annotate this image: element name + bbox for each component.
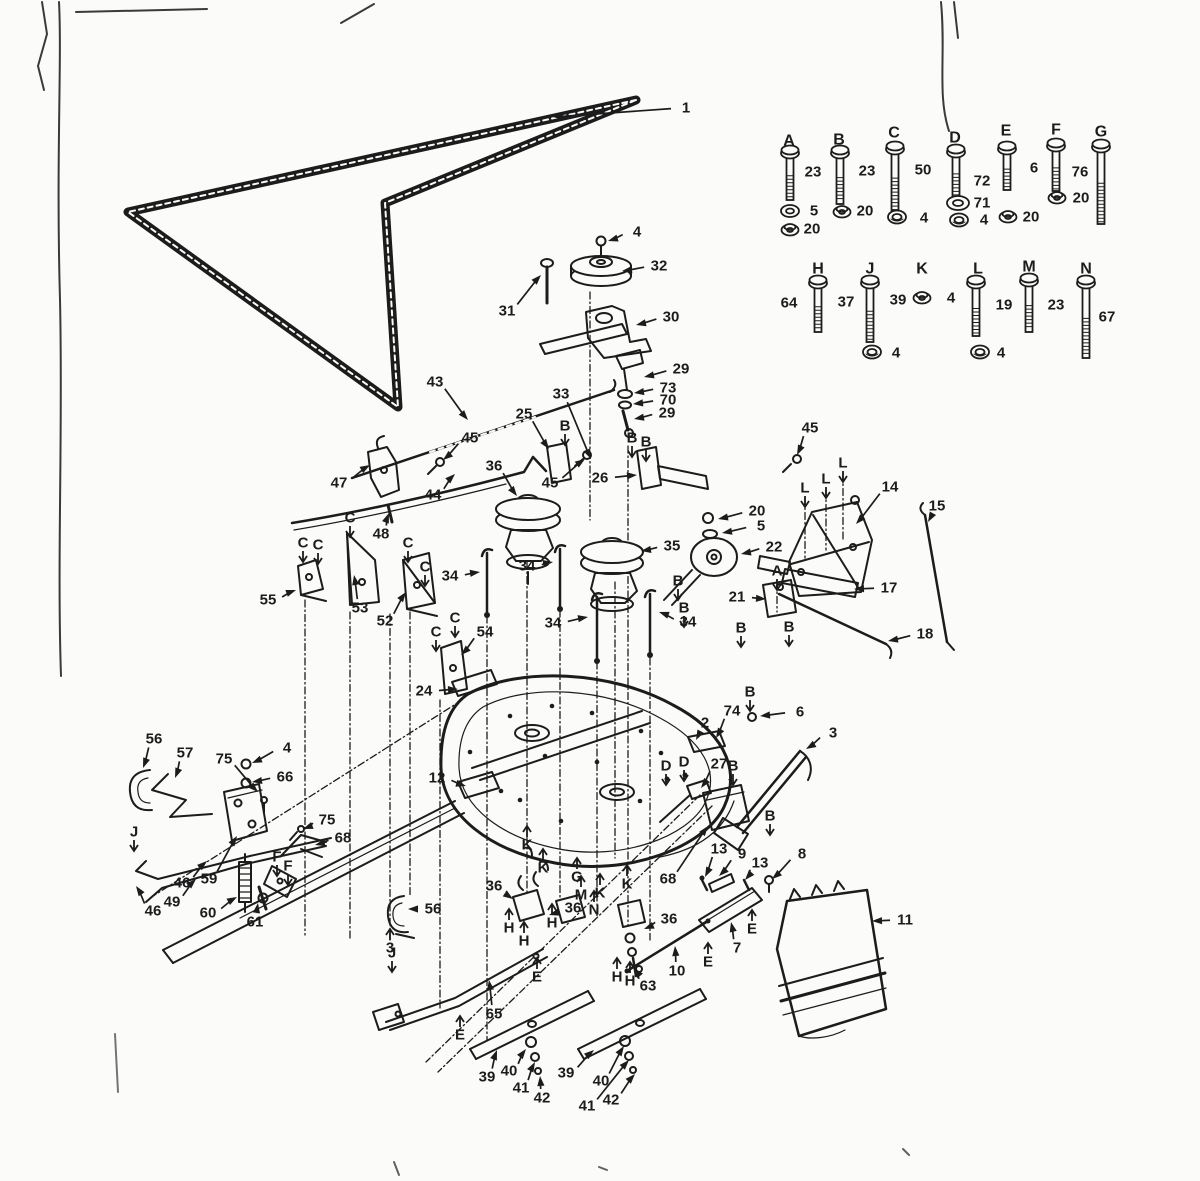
position-arrow-down — [299, 551, 307, 562]
fastener-icon-bolt — [947, 145, 965, 198]
part-number-callout: 63 — [640, 978, 657, 995]
part-number-callout: 41 — [579, 1098, 596, 1115]
leader-arrowhead — [705, 866, 713, 877]
fastener-letter-callout: B — [736, 620, 747, 637]
fastener-letter-callout: F — [283, 858, 292, 875]
legend-letter: N — [1080, 261, 1092, 278]
legend-letter: E — [1001, 123, 1012, 140]
legend-part-number: 5 — [810, 203, 818, 220]
fastener-letter-callout: L — [821, 471, 830, 488]
legend-part-number: 19 — [996, 297, 1013, 314]
fastener-letter-callout: J — [130, 824, 138, 841]
parts-diagram-canvas: 1432313029737029332543453644474826454514… — [0, 0, 1200, 1181]
blades — [470, 989, 706, 1074]
fastener-letter-callout: D — [661, 758, 672, 775]
part-number-callout: 13 — [752, 855, 769, 872]
fastener-icon-bolt — [831, 146, 849, 205]
fastener-letter-callout: A — [772, 563, 783, 580]
fastener-letter-callout: H — [519, 933, 530, 950]
part-number-callout: 36 — [486, 458, 503, 475]
position-arrow-up — [748, 910, 756, 921]
fastener-letter-callout: B — [679, 600, 690, 617]
leader-arrowhead — [470, 570, 480, 577]
part-number-callout: 4 — [283, 740, 292, 757]
position-arrow-up — [505, 909, 513, 920]
fastener-letter-callout: H — [625, 973, 636, 990]
leader-arrowhead — [508, 486, 517, 496]
legend-part-number: 67 — [1099, 309, 1116, 326]
legend-part-number: 39 — [890, 292, 907, 309]
part-number-callout: 68 — [335, 830, 352, 847]
part-number-callout: 42 — [603, 1092, 620, 1109]
leader-arrowhead — [487, 980, 494, 990]
legend-letter: D — [949, 130, 961, 147]
fastener-letter-callout: F — [272, 849, 281, 866]
fastener-letter-callout: B — [641, 434, 652, 451]
leader-arrowhead — [634, 388, 644, 395]
part-number-callout: 18 — [917, 626, 934, 643]
part-number-callout: 74 — [724, 703, 741, 720]
part-number-callout: 8 — [798, 846, 806, 863]
part-number-callout: 30 — [663, 309, 680, 326]
part-number-callout: 61 — [247, 914, 264, 931]
leader-arrowhead — [252, 756, 263, 763]
legend-part-number: 4 — [997, 345, 1006, 362]
leader-line — [517, 279, 537, 304]
part-number-callout: 9 — [738, 846, 746, 863]
leader-arrowhead — [459, 410, 468, 420]
fastener-letter-callout: K — [538, 860, 549, 877]
fastener-letter-callout: H — [612, 969, 623, 986]
leader-line — [567, 402, 588, 453]
fastener-letter-callout: H — [504, 920, 515, 937]
part-number-callout: 43 — [427, 374, 444, 391]
fastener-letter-callout: E — [747, 921, 757, 938]
position-arrow-down — [130, 840, 138, 851]
part-number-callout: 46 — [145, 903, 162, 920]
leader-arrowhead — [644, 371, 655, 378]
part-number-callout: 68 — [660, 871, 677, 888]
position-arrow-down — [432, 640, 440, 651]
position-arrow-down — [662, 774, 670, 785]
callouts-layer: 1432313029737029332543453644474826454514… — [130, 100, 946, 1115]
position-arrow-down — [642, 450, 650, 461]
leader-arrowhead — [537, 1076, 544, 1086]
part-number-callout: 26 — [592, 470, 609, 487]
part-number-callout: 41 — [513, 1080, 530, 1097]
fastener-icon-locknut — [1049, 192, 1066, 204]
position-arrow-down — [314, 553, 322, 564]
part-number-callout: 3 — [829, 725, 837, 742]
part-number-callout: 5 — [757, 518, 765, 535]
leader-arrowhead — [730, 922, 737, 933]
part-number-callout: 12 — [429, 770, 446, 787]
legend-letter: L — [973, 261, 983, 278]
part-number-callout: 20 — [749, 503, 766, 520]
part-number-callout: 54 — [477, 624, 494, 641]
position-arrow-up — [704, 943, 712, 954]
fastener-letter-callout: E — [703, 954, 713, 971]
fastener-icon-nut — [888, 211, 906, 224]
legend-part-number: 64 — [781, 295, 798, 312]
part-number-callout: 34 — [545, 615, 562, 632]
part-number-callout: 14 — [882, 479, 899, 496]
fastener-letter-callout: E — [532, 969, 542, 986]
part-number-callout: 39 — [558, 1065, 575, 1082]
part-number-callout: 22 — [766, 539, 783, 556]
fastener-icon-flatwasher — [947, 196, 969, 210]
hardware-legend: ABCDEFGHJKLMN235202320504727146207620643… — [781, 122, 1116, 362]
part-number-callout: 59 — [201, 871, 218, 888]
part-number-callout: 75 — [319, 812, 336, 829]
part-number-callout: 53 — [352, 600, 369, 617]
part-number-callout: 17 — [881, 580, 898, 597]
legend-part-number: 23 — [805, 164, 822, 181]
leader-arrowhead — [543, 560, 553, 567]
position-arrow-down — [674, 589, 682, 600]
legend-letter: K — [916, 261, 928, 278]
legend-part-number: 37 — [838, 294, 855, 311]
fastener-letter-callout: B — [673, 573, 684, 590]
leader-arrowhead — [408, 905, 418, 912]
drive-belt — [128, 100, 636, 407]
legend-part-number: 71 — [974, 195, 991, 212]
position-arrow-up — [623, 865, 631, 876]
part-number-callout: 10 — [669, 963, 686, 980]
part-number-callout: 49 — [164, 894, 181, 911]
part-number-callout: 65 — [486, 1006, 503, 1023]
fastener-icon-bolt — [998, 142, 1016, 191]
leader-arrowhead — [229, 836, 237, 846]
part-number-callout: 4 — [633, 224, 642, 241]
fastener-icon-bolt — [967, 276, 985, 337]
part-number-callout: 34 — [442, 568, 459, 585]
position-arrow-down — [801, 496, 809, 507]
part-number-callout: 24 — [416, 683, 433, 700]
leader-arrowhead — [540, 439, 549, 449]
part-number-callout: 56 — [146, 731, 163, 748]
legend-letter: J — [866, 261, 875, 278]
position-arrow-down — [822, 487, 830, 498]
fastener-letter-callout: C — [345, 510, 356, 527]
legend-letter: G — [1095, 124, 1107, 141]
legend-letter: H — [812, 261, 824, 278]
leader-arrowhead — [615, 1046, 624, 1056]
legend-part-number: 20 — [857, 203, 874, 220]
leader-arrowhead — [397, 592, 406, 602]
legend-part-number: 20 — [1073, 190, 1090, 207]
legend-letter: M — [1022, 259, 1035, 276]
fastener-letter-callout: B — [627, 430, 638, 447]
part-number-callout: 21 — [729, 589, 746, 606]
leader-arrowhead — [627, 472, 637, 479]
fastener-icon-bolt — [886, 142, 904, 211]
leader-arrowhead — [527, 1062, 535, 1073]
part-number-callout: 31 — [499, 303, 516, 320]
part-number-callout: 45 — [462, 430, 479, 447]
fastener-letter-callout: D — [679, 754, 690, 771]
leader-arrowhead — [718, 513, 729, 520]
part-number-callout: 11 — [897, 912, 913, 929]
fastener-icon-locknut — [1000, 211, 1017, 223]
fastener-letter-callout: N — [589, 902, 600, 919]
part-number-callout: 33 — [553, 386, 570, 403]
deflector-shield — [777, 881, 886, 1038]
part-number-callout: 29 — [673, 361, 690, 378]
fastener-letter-callout: B — [784, 619, 795, 636]
leader-arrowhead — [760, 711, 770, 718]
leader-arrowhead — [722, 528, 732, 535]
engine-pulley-assembly — [540, 237, 651, 359]
part-number-callout: 34 — [519, 558, 536, 575]
position-arrow-up — [520, 922, 528, 933]
leader-arrowhead — [741, 548, 752, 555]
leader-arrowhead — [634, 414, 644, 421]
part-number-callout: 75 — [216, 751, 233, 768]
leader-arrowhead — [636, 319, 647, 326]
leader-arrowhead — [352, 575, 359, 585]
legend-part-number: 23 — [859, 163, 876, 180]
part-number-callout: 36 — [661, 911, 678, 928]
hinge-assembly — [130, 760, 331, 913]
part-number-callout: 1 — [682, 100, 690, 117]
position-arrow-up — [386, 929, 394, 940]
fastener-icon-bolt — [1020, 274, 1038, 333]
leader-line — [860, 494, 880, 520]
part-number-callout: 56 — [425, 901, 442, 918]
fastener-letter-callout: C — [420, 559, 431, 576]
part-number-callout: 7 — [733, 940, 741, 957]
position-arrow-down — [680, 770, 688, 781]
fastener-letter-callout: K — [622, 876, 633, 893]
parts-diagram-page: 1432313029737029332543453644474826454514… — [0, 0, 1200, 1181]
legend-part-number: 20 — [804, 221, 821, 238]
part-number-callout: 44 — [425, 487, 442, 504]
fastener-icon-locknut — [914, 292, 931, 304]
fastener-letter-callout: K — [522, 837, 533, 854]
part-number-callout: 39 — [479, 1069, 496, 1086]
legend-letter: A — [783, 133, 795, 150]
fastener-letter-callout: B — [745, 684, 756, 701]
fastener-letter-callout: C — [313, 537, 324, 554]
legend-part-number: 23 — [1048, 297, 1065, 314]
part-number-callout: 15 — [929, 498, 946, 515]
leader-arrowhead — [633, 399, 643, 406]
fastener-letter-callout: E — [455, 1027, 465, 1044]
leader-arrowhead — [888, 636, 898, 643]
part-number-callout: 47 — [331, 475, 348, 492]
leader-arrowhead — [745, 870, 754, 880]
fastener-letter-callout: H — [547, 915, 558, 932]
position-arrow-down — [766, 824, 774, 835]
legend-letter: B — [833, 132, 845, 149]
fastener-icon-bolt — [1077, 276, 1095, 359]
part-number-callout: 25 — [516, 406, 533, 423]
part-number-callout: 6 — [796, 704, 804, 721]
legend-part-number: 6 — [1030, 160, 1038, 177]
position-arrow-up — [613, 958, 621, 969]
fastener-icon-nut — [863, 346, 881, 359]
part-number-callout: 2 — [701, 715, 709, 732]
leader-line — [445, 389, 464, 416]
part-number-callout: 60 — [200, 905, 217, 922]
part-number-callout: 55 — [260, 592, 277, 609]
position-arrow-down — [388, 961, 396, 972]
leader-arrowhead — [382, 513, 389, 524]
part-number-callout: 57 — [177, 745, 194, 762]
legend-part-number: 50 — [915, 162, 932, 179]
position-arrow-up — [533, 958, 541, 969]
fastener-letter-callout: C — [298, 535, 309, 552]
part-number-callout: 35 — [664, 538, 681, 555]
part-number-callout: 29 — [659, 405, 676, 422]
fastener-letter-callout: M — [575, 887, 588, 904]
fastener-icon-nut — [971, 346, 989, 359]
leader-arrowhead — [626, 1074, 635, 1084]
position-arrow-down — [773, 579, 781, 590]
leader-arrowhead — [578, 615, 588, 622]
legend-part-number: 72 — [974, 173, 991, 190]
part-number-callout: 13 — [711, 841, 728, 858]
leader-arrowhead — [175, 767, 182, 778]
spindle-assemblies — [496, 495, 643, 611]
fastener-icon-bolt — [1092, 140, 1110, 225]
fastener-icon-washer — [781, 205, 799, 217]
part-number-callout: 42 — [534, 1090, 551, 1107]
fastener-icon-bolt — [809, 276, 827, 333]
position-arrow-down — [628, 446, 636, 457]
legend-part-number: 4 — [892, 345, 901, 362]
fastener-letter-callout: B — [728, 758, 739, 775]
position-arrow-up — [523, 826, 531, 837]
leader-arrowhead — [719, 866, 729, 876]
leader-arrowhead — [672, 946, 679, 956]
fastener-letter-callout: B — [765, 808, 776, 825]
part-number-callout: 66 — [277, 769, 294, 786]
part-number-callout: 48 — [373, 526, 390, 543]
fastener-letter-callout: J — [388, 945, 396, 962]
leader-arrowhead — [503, 890, 513, 899]
legend-part-number: 4 — [980, 212, 989, 229]
part-number-callout: 52 — [377, 613, 394, 630]
leader-arrowhead — [143, 757, 150, 768]
fastener-letter-callout: C — [431, 624, 442, 641]
leader-arrowhead — [659, 612, 670, 619]
part-number-callout: 36 — [486, 878, 503, 895]
fastener-icon-bolt — [781, 146, 799, 201]
fastener-letter-callout: B — [560, 418, 571, 435]
position-arrow-down — [785, 635, 793, 646]
fastener-icon-locknut — [782, 224, 799, 236]
part-number-callout: 45 — [802, 420, 819, 437]
fastener-letter-callout: C — [403, 535, 414, 552]
fastener-icon-nut — [950, 214, 968, 227]
legend-part-number: 4 — [920, 210, 929, 227]
leader-arrowhead — [797, 444, 805, 455]
leader-arrowhead — [445, 474, 455, 484]
position-arrow-down — [737, 636, 745, 647]
part-number-callout: 45 — [542, 475, 559, 492]
fastener-icon-bolt — [1047, 139, 1065, 192]
leader-arrowhead — [517, 1049, 526, 1059]
part-number-callout: 32 — [651, 258, 668, 275]
legend-part-number: 4 — [947, 290, 956, 307]
position-arrow-down — [451, 626, 459, 637]
fastener-icon-bolt — [861, 276, 879, 343]
part-number-callout: 27 — [711, 756, 728, 773]
legend-letter: C — [888, 125, 900, 142]
part-number-callout: 40 — [501, 1063, 518, 1080]
leader-arrowhead — [136, 886, 145, 896]
legend-letter: F — [1051, 122, 1061, 139]
fastener-letter-callout: L — [838, 455, 847, 472]
leader-arrowhead — [608, 235, 619, 242]
leader-line — [217, 841, 234, 871]
leader-arrowhead — [285, 590, 296, 597]
legend-part-number: 76 — [1072, 164, 1089, 181]
fastener-icon-locknut — [834, 206, 851, 218]
position-arrow-down — [746, 700, 754, 711]
position-arrow-down — [839, 471, 847, 482]
legend-part-number: 20 — [1023, 209, 1040, 226]
fastener-letter-callout: C — [450, 610, 461, 627]
fastener-letter-callout: L — [800, 480, 809, 497]
